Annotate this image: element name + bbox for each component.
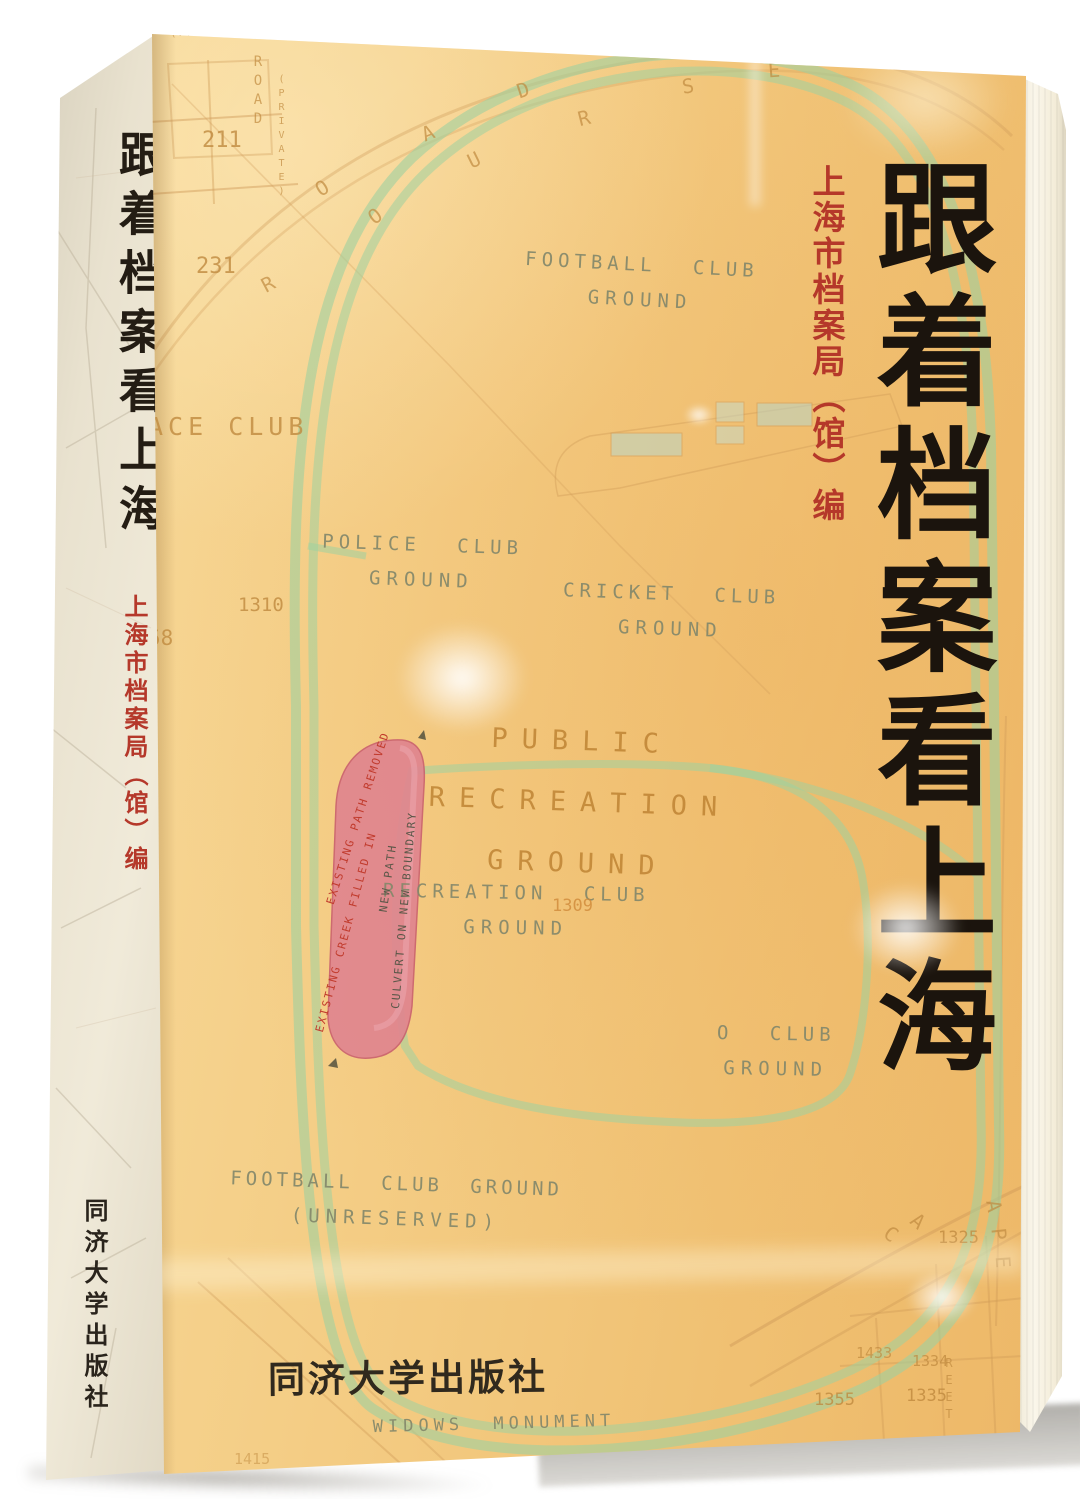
label-football-unreserved: FOOTBALL CLUB GROUND (UNRESERVED) <box>229 1167 564 1236</box>
spine-publisher: 同济大学出版社 <box>82 1198 106 1415</box>
plot-number: 1355 <box>814 1390 855 1410</box>
cover-publisher: 同济大学出版社 <box>268 1347 549 1404</box>
label-line: O CLUB <box>717 1022 836 1046</box>
plot-number: 1334 <box>912 1352 948 1370</box>
plot-number: 1335 <box>906 1386 947 1406</box>
plot-number: 211 <box>202 128 242 153</box>
label-recreation-club: RECREATION CLUB GROUND <box>382 880 650 942</box>
plot-number: 231 <box>196 254 236 279</box>
label-line: PUBLIC <box>491 723 674 760</box>
label-club-right: O CLUB GROUND <box>716 1022 836 1081</box>
spine-author: 上海市档案局（馆）编 <box>122 594 146 874</box>
plot-number: 1310 <box>238 594 284 616</box>
curve-letter: P <box>986 1227 1011 1241</box>
cover-title: 跟着档案看上海 <box>866 156 986 1087</box>
book-spine: 跟着档案看上海 上海市档案局（馆）编 同济大学出版社 <box>36 28 174 1490</box>
cover-author: 上海市档案局（馆）编 <box>810 164 843 524</box>
label-line: RECREATION CLUB <box>383 880 650 907</box>
label-police-club: POLICE CLUB GROUND <box>321 531 524 595</box>
curve-letter: E <box>767 58 781 83</box>
label-race-club: ACE CLUB <box>148 412 308 441</box>
plot-number: 1415 <box>234 1450 270 1468</box>
front-cover: FOOTBALL CLUB GROUND POLICE CLUB GROUND … <box>150 26 1026 1478</box>
plot-number-1309: 1309 <box>552 896 593 916</box>
plot-number: 1433 <box>856 1344 892 1362</box>
plot-number: 1325 <box>938 1228 979 1248</box>
label-cricket-club: CRICKET CLUB GROUND <box>561 579 780 644</box>
label-line: GROUND <box>716 1057 835 1081</box>
label-private-vertical: (PRIVATE) <box>276 74 287 200</box>
label-line: RECREATION <box>428 782 731 824</box>
label-line: GROUND <box>382 915 649 942</box>
label-football-club: FOOTBALL CLUB GROUND <box>523 248 759 317</box>
book-cover-photo: 跟着档案看上海 上海市档案局（馆）编 同济大学出版社 <box>0 0 1080 1499</box>
label-road-vertical: ROAD <box>250 54 266 130</box>
label-public-recreation: PUBLIC RECREATION GROUND <box>426 721 734 884</box>
label-private-top: (PRIVATE.) <box>170 26 256 39</box>
curve-letter: E <box>991 1255 1016 1269</box>
